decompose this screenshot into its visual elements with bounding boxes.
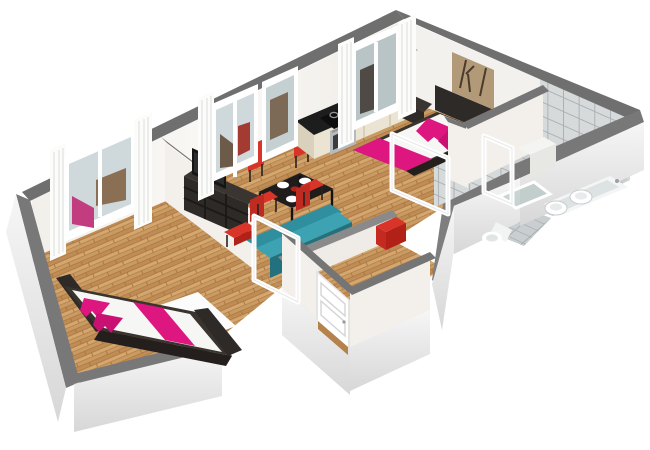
toilet-seat (486, 234, 498, 241)
bathtub-faucet (615, 179, 619, 183)
floorplan-render (0, 0, 650, 450)
glass-door-reflection (270, 92, 288, 140)
plate-1 (277, 182, 289, 189)
floorplan-svg (0, 0, 650, 450)
curtain-b1-right (134, 112, 152, 230)
sink-1-basin (550, 203, 562, 210)
window-living-red-reflection (238, 122, 250, 156)
wall-b2-face (448, 120, 468, 188)
entry-door-knob (342, 320, 345, 323)
sink-2-basin (575, 192, 587, 199)
